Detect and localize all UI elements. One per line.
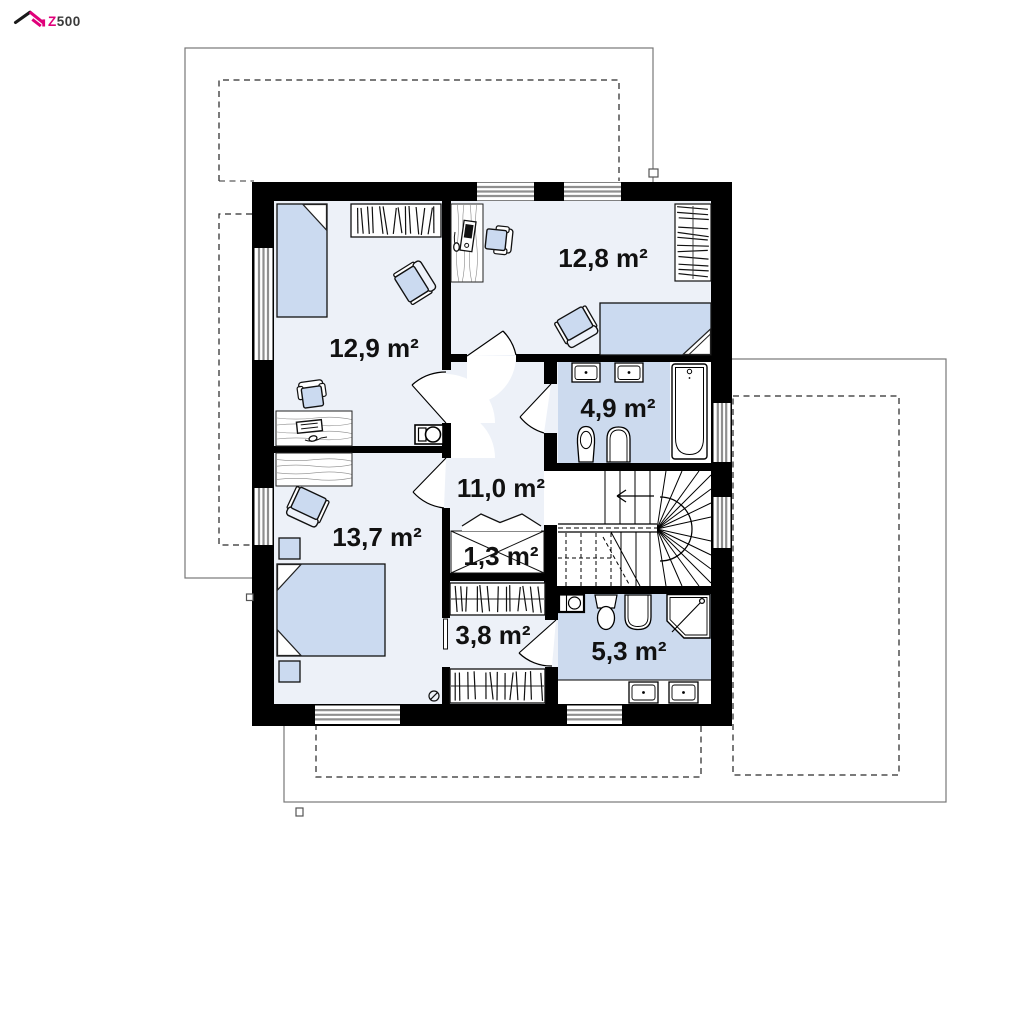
svg-text:Z500: Z500 [48,14,81,29]
svg-text:12,9 m²: 12,9 m² [329,333,419,363]
svg-text:5,3 m²: 5,3 m² [591,636,666,666]
svg-text:11,0 m²: 11,0 m² [457,473,546,503]
svg-text:4,9 m²: 4,9 m² [580,393,655,423]
svg-text:12,8 m²: 12,8 m² [558,243,648,273]
svg-text:1,3 m²: 1,3 m² [463,541,538,571]
svg-text:13,7 m²: 13,7 m² [332,522,422,552]
svg-text:3,8 m²: 3,8 m² [455,620,530,650]
